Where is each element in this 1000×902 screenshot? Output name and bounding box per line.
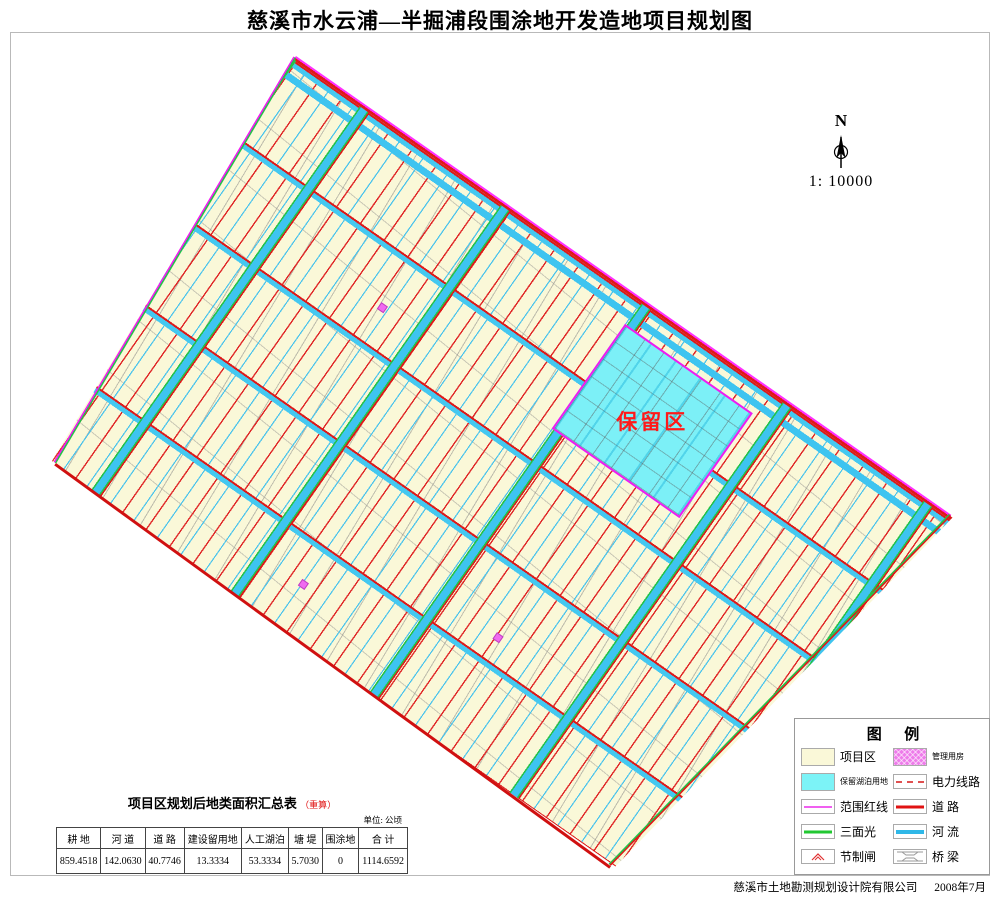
- footer-credit: 慈溪市土地勘测规划设计院有限公司 2008年7月: [733, 879, 986, 895]
- legend-item-three-side: 三面光: [801, 823, 893, 840]
- legend-box: 图 例 项目区 管理用房 保留湖泊用地 电力线路: [794, 718, 990, 875]
- reserved-area-label: 保留区: [616, 406, 688, 436]
- three-side-swatch: [801, 824, 835, 839]
- cell-value: 859.4518: [57, 849, 101, 874]
- legend-row: 项目区 管理用房: [801, 744, 985, 769]
- col-header: 人工湖泊: [241, 828, 288, 849]
- map-frame: 保留区 N 1: 10000 图 例: [10, 32, 990, 876]
- map-date: 2008年7月: [934, 882, 986, 894]
- road-swatch: [893, 799, 927, 814]
- col-header: 合 计: [359, 828, 408, 849]
- summary-table-unit: 单位: 公顷: [56, 814, 402, 826]
- compass-needle-icon: [830, 133, 852, 171]
- legend-item-label: 保留湖泊用地: [840, 776, 888, 787]
- col-header: 道 路: [145, 828, 184, 849]
- col-header: 耕 地: [57, 828, 101, 849]
- col-header: 塘 堤: [288, 828, 322, 849]
- legend-item-label: 范围红线: [840, 798, 888, 815]
- legend-item-bridge: 桥 梁: [893, 848, 985, 865]
- area-summary-table: 耕 地 河 道 道 路 建设留用地 人工湖泊 塘 堤 围涂地 合 计 859.4…: [56, 827, 408, 874]
- table-header-row: 耕 地 河 道 道 路 建设留用地 人工湖泊 塘 堤 围涂地 合 计: [57, 828, 408, 849]
- legend-item-label: 河 流: [932, 823, 959, 840]
- north-scale-block: N 1: 10000: [791, 111, 891, 191]
- col-header: 围涂地: [322, 828, 358, 849]
- legend-item-label: 电力线路: [932, 773, 980, 790]
- cell-value: 53.3334: [241, 849, 288, 874]
- legend-item-label: 桥 梁: [932, 848, 959, 865]
- legend-item-label: 管理用房: [932, 751, 964, 762]
- cell-value: 40.7746: [145, 849, 184, 874]
- cell-value: 142.0630: [101, 849, 145, 874]
- river-swatch: [893, 824, 927, 839]
- legend-title: 图 例: [801, 723, 985, 744]
- planning-map-sheet: 慈溪市水云浦—半掘浦段围涂地开发造地项目规划图 保留区 N: [0, 0, 1000, 902]
- legend-item-label: 道 路: [932, 798, 959, 815]
- cell-value: 5.7030: [288, 849, 322, 874]
- cell-value: 13.3334: [184, 849, 241, 874]
- legend-item-reserved-lake: 保留湖泊用地: [801, 773, 893, 791]
- legend-item-label: 项目区: [840, 748, 876, 765]
- area-summary-block: 项目区规划后地类面积汇总表 （重算） 单位: 公顷 耕 地 河 道 道 路 建设…: [56, 793, 408, 874]
- summary-table-title-text: 项目区规划后地类面积汇总表: [128, 796, 297, 811]
- bridge-icon: [893, 849, 927, 864]
- management-house-marker: [298, 579, 309, 590]
- legend-item-label: 三面光: [840, 823, 876, 840]
- company-name: 慈溪市土地勘测规划设计院有限公司: [733, 882, 917, 894]
- cell-value: 0: [322, 849, 358, 874]
- range-red-line-swatch: [801, 799, 835, 814]
- summary-table-title: 项目区规划后地类面积汇总表 （重算）: [56, 793, 408, 812]
- control-gate-icon: [801, 849, 835, 864]
- legend-row: 节制闸 桥 梁: [801, 844, 985, 869]
- cell-value: 1114.6592: [359, 849, 408, 874]
- legend-item-road: 道 路: [893, 798, 985, 815]
- legend-item-control-gate: 节制闸: [801, 848, 893, 865]
- legend-row: 三面光 河 流: [801, 819, 985, 844]
- summary-table-title-note: （重算）: [300, 800, 336, 810]
- page-title: 慈溪市水云浦—半掘浦段围涂地开发造地项目规划图: [0, 5, 1000, 35]
- north-label: N: [791, 111, 891, 131]
- reserved-lake-swatch: [801, 773, 835, 791]
- table-value-row: 859.4518 142.0630 40.7746 13.3334 53.333…: [57, 849, 408, 874]
- management-house-marker: [377, 302, 388, 313]
- reserved-area: 保留区: [552, 324, 753, 518]
- legend-item-power-line: 电力线路: [893, 773, 985, 790]
- legend-item-project-area: 项目区: [801, 748, 893, 766]
- management-house-marker: [492, 632, 503, 643]
- legend-row: 范围红线 道 路: [801, 794, 985, 819]
- legend-item-management-house: 管理用房: [893, 748, 985, 766]
- legend-item-river: 河 流: [893, 823, 985, 840]
- scale-text: 1: 10000: [791, 173, 891, 191]
- power-line-swatch: [893, 774, 927, 789]
- legend-item-label: 节制闸: [840, 848, 876, 865]
- project-area-swatch: [801, 748, 835, 766]
- legend-row: 保留湖泊用地 电力线路: [801, 769, 985, 794]
- col-header: 建设留用地: [184, 828, 241, 849]
- legend-item-range-red-line: 范围红线: [801, 798, 893, 815]
- management-house-swatch: [893, 748, 927, 766]
- col-header: 河 道: [101, 828, 145, 849]
